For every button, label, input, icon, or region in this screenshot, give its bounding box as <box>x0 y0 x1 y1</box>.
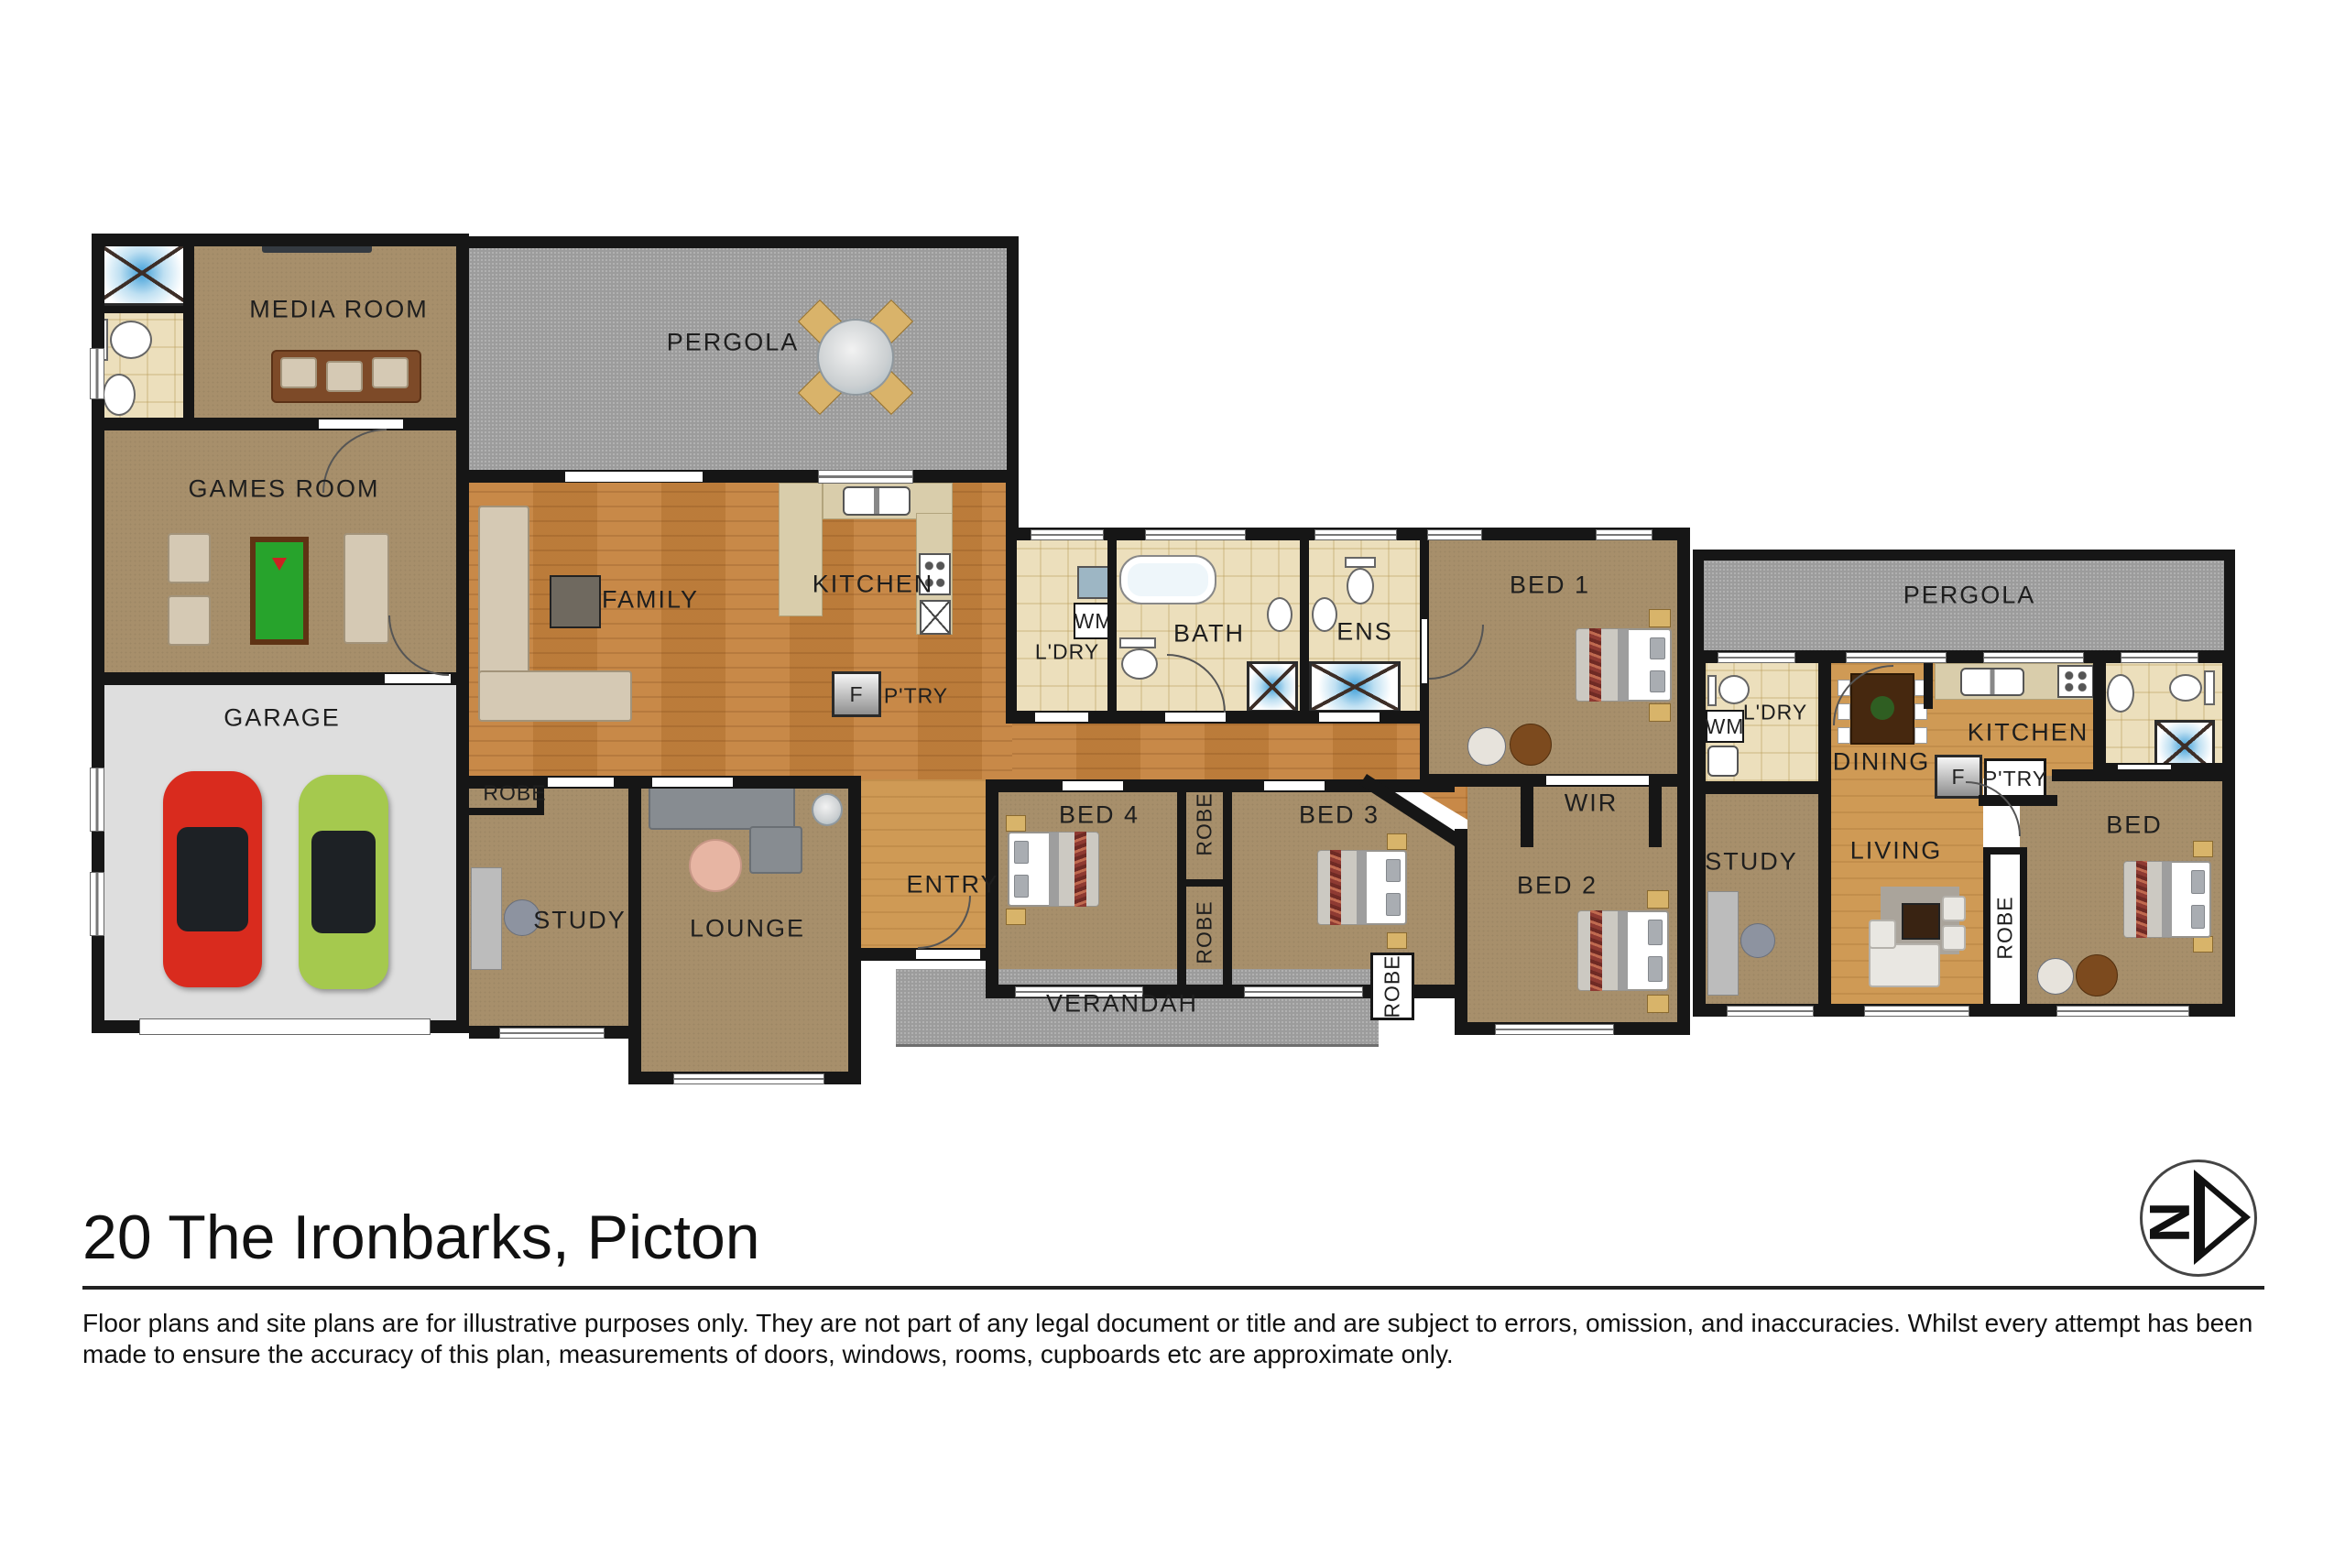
toilet-tank-icon <box>1345 557 1376 568</box>
window <box>90 872 104 936</box>
window <box>90 768 104 832</box>
door-opening <box>548 778 614 787</box>
media-sofa-cushion <box>326 361 363 392</box>
window <box>1727 1006 1814 1017</box>
door-opening <box>1063 781 1123 790</box>
door-opening <box>652 778 733 787</box>
door-opening <box>1264 781 1325 790</box>
fridge-label: F <box>849 682 863 707</box>
window <box>673 1073 824 1084</box>
page-title: 20 The Ironbarks, Picton <box>82 1202 760 1273</box>
bedside-table <box>1387 833 1407 850</box>
compass-north-letter: N <box>2136 1202 2201 1243</box>
window <box>1983 652 2084 663</box>
basin-icon <box>2107 674 2134 713</box>
window <box>90 348 104 399</box>
dining-chair <box>1838 727 1850 744</box>
shower-icon <box>1309 661 1401 713</box>
round-table <box>1510 724 1552 766</box>
room-label-bed4: BED 4 <box>1059 801 1140 830</box>
toilet-icon <box>1121 648 1158 680</box>
flat-fridge-label: F <box>1951 765 1965 789</box>
wall-segment <box>1924 663 1933 709</box>
wall-segment <box>1107 540 1117 711</box>
bedside-table <box>1006 909 1026 925</box>
wall-segment <box>1706 781 1831 794</box>
wall-segment <box>1006 540 1017 711</box>
room-label-flat-bed: BED <box>2106 811 2163 840</box>
sliding-door-opening <box>565 472 703 482</box>
bedside-table <box>2193 936 2213 953</box>
wall-segment <box>469 808 544 815</box>
wall-segment <box>1455 829 1467 1035</box>
window <box>1427 529 1482 540</box>
room-label-lounge: LOUNGE <box>690 915 805 943</box>
wall-segment <box>1818 794 1831 1004</box>
room-label-bed1: BED 1 <box>1510 572 1590 600</box>
garage-floor <box>92 685 469 1033</box>
room-label-robe-study: ROBE <box>483 781 546 806</box>
lounge-chaise <box>749 826 802 874</box>
bedside-table <box>1647 890 1669 909</box>
window <box>1495 1024 1614 1035</box>
media-sofa-cushion <box>372 357 409 388</box>
compass-arrow-inner <box>2205 1186 2241 1248</box>
living-armchair <box>1942 896 1966 921</box>
room-label-kitchen: KITCHEN <box>813 571 934 599</box>
floorplan-page: F WM WM <box>0 0 2345 1568</box>
door-opening <box>1422 619 1427 683</box>
room-label-verandah: VERANDAH <box>1046 990 1198 1018</box>
room-label-flat-study: STUDY <box>1705 848 1798 877</box>
bedside-table <box>1649 609 1671 627</box>
room-label-pergola-top: PERGOLA <box>667 329 800 357</box>
window <box>2121 652 2198 663</box>
room-label-ens: ENS <box>1336 618 1393 647</box>
living-coffee-table <box>1902 903 1940 940</box>
room-label-entry: ENTRY <box>906 871 998 899</box>
flat-washing-machine-label: WM <box>1706 714 1745 739</box>
living-sofa <box>1869 943 1940 987</box>
window <box>1864 1006 1969 1017</box>
room-label-bed2: BED 2 <box>1517 872 1598 900</box>
bed3-bed <box>1317 850 1407 925</box>
bed4-bed <box>1008 832 1099 907</box>
verandah-edge <box>896 1044 1379 1047</box>
wall-segment <box>469 236 1019 248</box>
living-armchair <box>1942 925 1966 951</box>
wall-segment <box>1693 550 2235 561</box>
wall-segment <box>469 470 1019 483</box>
wall-segment <box>848 961 861 1084</box>
armchair <box>168 595 211 646</box>
bedside-table <box>1006 815 1026 832</box>
garage-door <box>139 1018 431 1035</box>
car-red <box>163 771 262 987</box>
wall-segment <box>2093 663 2106 776</box>
room-label-pergola-right: PERGOLA <box>1903 582 2036 610</box>
lounge-sofa <box>649 784 795 830</box>
room-label-games: GAMES ROOM <box>188 475 379 504</box>
fridge-space-icon <box>920 600 951 635</box>
basin-icon <box>1267 597 1292 632</box>
wall-segment <box>183 234 194 430</box>
wall-segment <box>2020 847 2027 1004</box>
outdoor-table <box>817 319 894 396</box>
wall-segment <box>848 776 861 961</box>
window <box>1846 652 1947 663</box>
chair <box>2037 958 2074 995</box>
bedside-table <box>1387 932 1407 949</box>
room-label-media: MEDIA ROOM <box>249 296 429 324</box>
window <box>499 1028 605 1039</box>
media-sofa-cushion <box>280 357 317 388</box>
flat-bed-bed <box>2123 861 2211 938</box>
wall-segment <box>1983 847 2027 855</box>
wall-segment <box>1177 879 1232 887</box>
toilet-icon <box>1347 568 1374 604</box>
desk <box>1707 891 1739 996</box>
toilet-tank-icon <box>1119 637 1156 648</box>
round-table <box>2076 954 2118 996</box>
window <box>1145 529 1246 540</box>
wall-segment <box>456 234 469 1033</box>
laundry-sink-icon <box>1707 746 1739 777</box>
sliding-door-opening <box>1546 776 1649 785</box>
room-label-garage: GARAGE <box>224 704 341 733</box>
flat-pantry-label: P'TRY <box>1983 767 2047 791</box>
fridge-box: F <box>832 671 881 717</box>
pool-table <box>250 537 309 645</box>
room-label-bath: BATH <box>1173 620 1245 648</box>
wall-segment <box>2224 550 2235 650</box>
room-label-flat-dining: DINING <box>1833 748 1931 777</box>
disclaimer-text: Floor plans and site plans are for illus… <box>82 1308 2272 1370</box>
side-table <box>812 793 843 826</box>
room-label-robe-bed3: ROBE <box>1193 900 1217 964</box>
lounge-coffee-table <box>689 839 742 892</box>
shower-icon <box>1247 661 1298 713</box>
window <box>1244 986 1363 997</box>
room-label-flat-kitchen: KITCHEN <box>1968 719 2089 747</box>
desk-chair <box>1740 923 1775 958</box>
basin-icon <box>103 374 136 416</box>
room-label-robe-hall: ROBE <box>1380 954 1405 1018</box>
desk <box>471 867 502 970</box>
living-sofa-corner <box>1869 920 1896 949</box>
door-opening <box>1319 713 1380 722</box>
room-label-flat-living: LIVING <box>1850 837 1943 866</box>
toilet-icon <box>2169 674 2202 702</box>
window <box>818 470 913 484</box>
wall-segment <box>1983 847 1991 1004</box>
kitchen-sink-icon <box>1960 668 2024 696</box>
window <box>1596 529 1652 540</box>
north-compass-icon: N <box>2140 1160 2257 1277</box>
bathtub-icon <box>1119 555 1216 604</box>
flat-washing-machine-box: WM <box>1706 710 1744 743</box>
divider <box>82 1286 2264 1290</box>
window <box>1718 652 1795 663</box>
shower-icon <box>93 240 191 306</box>
coffee-table <box>550 575 601 628</box>
room-label-laundry: L'DRY <box>1035 640 1099 665</box>
wall-segment <box>92 234 469 246</box>
bed2-bed <box>1577 910 1669 991</box>
kitchen-sink-icon <box>843 486 911 516</box>
room-label-flat-robe: ROBE <box>1993 896 2018 959</box>
wall-segment <box>1521 787 1533 847</box>
chair <box>1467 727 1506 766</box>
window <box>2056 1006 2189 1017</box>
wall-segment <box>2052 769 2222 781</box>
toilet-icon <box>110 321 152 359</box>
toilet-tank-icon <box>1707 675 1717 706</box>
family-sofa-horizontal <box>478 670 632 722</box>
wall-segment <box>1693 550 1704 650</box>
room-label-robe-bed4: ROBE <box>1193 792 1217 855</box>
wall-segment <box>1007 236 1019 476</box>
wall-segment <box>1818 663 1831 794</box>
wall-segment <box>2222 650 2235 1017</box>
stove-icon <box>2057 665 2094 698</box>
door-opening <box>1165 713 1226 722</box>
dining-chair <box>1914 727 1927 744</box>
room-label-flat-laundry: L'DRY <box>1743 701 1807 725</box>
bedside-table <box>1649 703 1671 722</box>
window <box>1031 529 1104 540</box>
wall-segment <box>1300 540 1309 711</box>
bed1-bed <box>1576 628 1672 702</box>
games-sofa <box>344 533 389 644</box>
wall-segment <box>92 418 469 430</box>
wall-segment <box>1649 787 1662 847</box>
room-label-wir: WIR <box>1565 789 1618 818</box>
room-label-study: STUDY <box>533 907 627 935</box>
door-opening <box>319 419 403 429</box>
basin-icon <box>1312 597 1337 632</box>
car-green <box>299 775 388 989</box>
room-label-bed3: BED 3 <box>1299 801 1380 830</box>
hallway-floor <box>1012 724 1429 779</box>
door-opening <box>1035 713 1088 722</box>
bedside-table <box>2193 841 2213 857</box>
room-label-pantry: P'TRY <box>884 684 948 709</box>
front-door-opening <box>916 950 980 959</box>
window <box>1314 529 1397 540</box>
wall-segment <box>93 306 192 313</box>
wall-segment <box>1693 650 1706 1017</box>
toilet-tank-icon <box>2204 670 2215 705</box>
room-label-family: FAMILY <box>602 586 699 615</box>
armchair <box>168 533 211 583</box>
bedside-table <box>1647 995 1669 1013</box>
